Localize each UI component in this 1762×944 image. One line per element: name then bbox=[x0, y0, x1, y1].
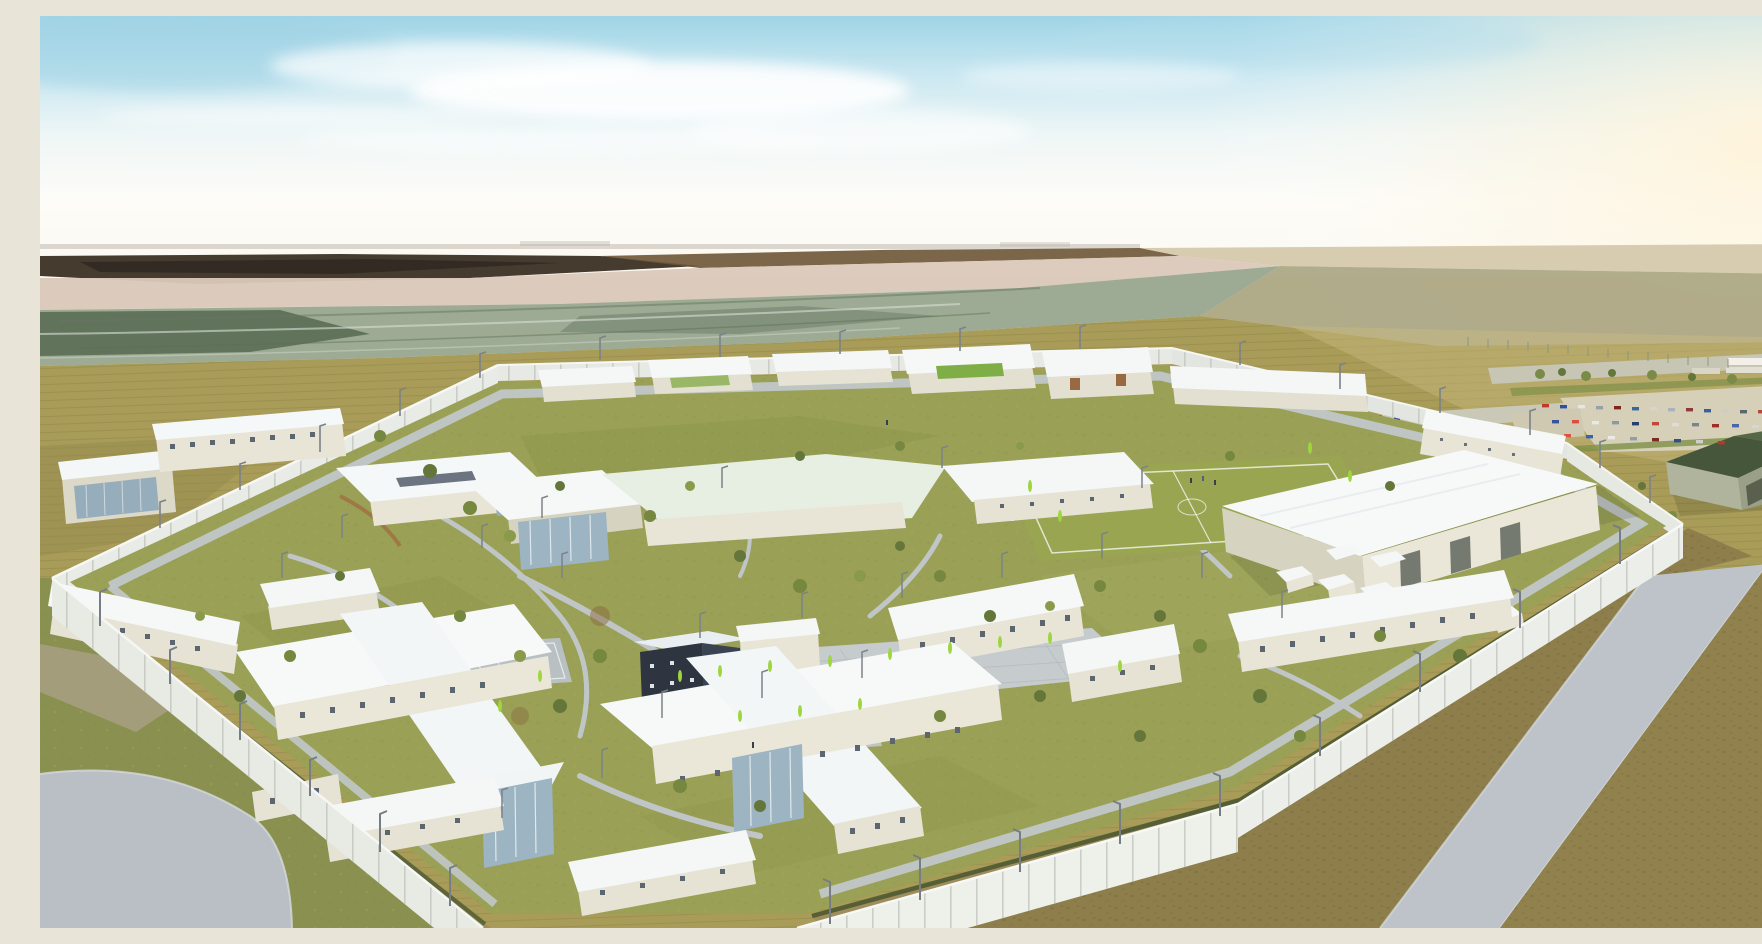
parked-cars-shape bbox=[1668, 408, 1675, 411]
distant-camp-building bbox=[1692, 368, 1720, 374]
window bbox=[210, 440, 215, 445]
parked-cars-shape bbox=[1704, 409, 1711, 412]
vegetation-shape bbox=[504, 530, 516, 542]
parked-cars-shape bbox=[1596, 406, 1603, 409]
window bbox=[820, 751, 825, 757]
parked-cars-shape bbox=[1752, 425, 1759, 428]
window bbox=[330, 707, 335, 713]
window bbox=[290, 434, 295, 439]
person bbox=[1214, 480, 1216, 485]
dorm-x2-entry-glass bbox=[732, 744, 804, 832]
dirt-patch bbox=[590, 606, 610, 626]
vegetation-shape bbox=[1385, 481, 1395, 491]
vegetation-shape bbox=[1253, 689, 1267, 703]
vegetation-shape bbox=[1016, 442, 1024, 450]
parked-cars-shape bbox=[1552, 420, 1559, 423]
window bbox=[480, 682, 485, 688]
window bbox=[650, 684, 654, 688]
cloud bbox=[100, 106, 500, 126]
outside-right-trees-shape bbox=[1535, 369, 1545, 379]
window bbox=[715, 770, 720, 776]
window bbox=[385, 830, 390, 835]
window bbox=[145, 634, 150, 639]
wood-accent bbox=[1070, 378, 1080, 390]
vegetation-shape bbox=[685, 481, 695, 491]
parked-cars-shape bbox=[1758, 410, 1762, 413]
vegetation-shape bbox=[284, 650, 296, 662]
window bbox=[360, 702, 365, 708]
window bbox=[1090, 497, 1094, 501]
cypress bbox=[828, 655, 832, 667]
cloud bbox=[270, 42, 650, 90]
cypress bbox=[538, 670, 542, 682]
window bbox=[170, 444, 175, 449]
window bbox=[270, 798, 275, 804]
vegetation-shape bbox=[793, 579, 807, 593]
window bbox=[420, 824, 425, 829]
parked-cars-shape bbox=[1572, 420, 1579, 423]
parked-cars-shape bbox=[1712, 424, 1719, 427]
cloud bbox=[960, 62, 1240, 90]
person bbox=[1202, 476, 1204, 481]
building-roof bbox=[1042, 347, 1153, 377]
cypress bbox=[1028, 480, 1032, 492]
gym-glass-front bbox=[518, 512, 609, 570]
cypress bbox=[1048, 632, 1052, 644]
parked-cars-shape bbox=[1650, 407, 1657, 410]
distant-camp-building bbox=[1728, 356, 1762, 358]
window bbox=[170, 640, 175, 645]
window bbox=[640, 883, 645, 888]
person bbox=[886, 420, 888, 425]
window bbox=[720, 869, 725, 874]
window bbox=[1150, 665, 1155, 670]
window bbox=[900, 817, 905, 823]
window bbox=[690, 678, 694, 682]
window bbox=[455, 818, 460, 823]
vegetation-shape bbox=[1094, 580, 1106, 592]
distant-camp-building bbox=[1728, 358, 1762, 365]
parked-cars-shape bbox=[1692, 423, 1699, 426]
window bbox=[1410, 622, 1415, 628]
parked-cars-shape bbox=[1578, 405, 1585, 408]
window bbox=[1040, 620, 1045, 626]
window bbox=[1030, 502, 1034, 506]
vegetation-shape bbox=[234, 690, 246, 702]
window bbox=[190, 442, 195, 447]
vegetation-shape bbox=[934, 570, 946, 582]
window bbox=[1350, 632, 1355, 638]
cypress bbox=[718, 665, 722, 677]
vegetation-shape bbox=[423, 464, 437, 478]
vegetation-shape bbox=[1225, 451, 1235, 461]
outside-right-trees-shape bbox=[1608, 369, 1616, 377]
architectural-rendering: Aerial 3D architectural rendering of a l… bbox=[40, 16, 1762, 928]
window bbox=[1512, 453, 1515, 456]
window bbox=[680, 876, 685, 881]
cypress bbox=[1058, 510, 1062, 522]
window bbox=[670, 681, 674, 685]
parked-cars-shape bbox=[1672, 423, 1679, 426]
vegetation-shape bbox=[514, 650, 526, 662]
parked-cars-shape bbox=[1652, 422, 1659, 425]
window bbox=[300, 712, 305, 718]
window bbox=[950, 637, 955, 643]
dirt-patch bbox=[511, 707, 529, 725]
vegetation-shape bbox=[553, 699, 567, 713]
parked-cars-shape bbox=[1586, 435, 1593, 438]
parked-cars-shape bbox=[1722, 409, 1729, 412]
vegetation-shape bbox=[463, 501, 477, 515]
window bbox=[1464, 443, 1467, 446]
parked-cars-shape bbox=[1632, 422, 1639, 425]
parked-cars-shape bbox=[1630, 437, 1637, 440]
cloud bbox=[300, 127, 820, 155]
outside-right-trees-shape bbox=[1638, 482, 1646, 490]
parked-cars-shape bbox=[1612, 421, 1619, 424]
window bbox=[420, 692, 425, 698]
window bbox=[1060, 499, 1064, 503]
warehouse-bay bbox=[1400, 550, 1421, 588]
cypress bbox=[998, 636, 1002, 648]
parked-cars-shape bbox=[1614, 406, 1621, 409]
scene bbox=[40, 16, 1762, 928]
vegetation-shape bbox=[454, 610, 466, 622]
vegetation-shape bbox=[1154, 610, 1166, 622]
parked-cars-shape bbox=[1718, 441, 1725, 444]
cypress bbox=[1308, 442, 1312, 454]
distant-skyline bbox=[520, 241, 610, 246]
cypress bbox=[678, 670, 682, 682]
vegetation-shape bbox=[593, 649, 607, 663]
window bbox=[1440, 617, 1445, 623]
vegetation-shape bbox=[984, 610, 996, 622]
vegetation-shape bbox=[673, 779, 687, 793]
vegetation-shape bbox=[795, 451, 805, 461]
vegetation-shape bbox=[895, 441, 905, 451]
window bbox=[890, 738, 895, 744]
window bbox=[670, 661, 674, 665]
outside-right-trees-shape bbox=[1727, 374, 1737, 384]
outside-right-trees-shape bbox=[1558, 368, 1566, 376]
window bbox=[1470, 613, 1475, 619]
cypress bbox=[1118, 660, 1122, 672]
parked-cars-shape bbox=[1632, 407, 1639, 410]
vegetation-shape bbox=[895, 541, 905, 551]
outside-right-trees-shape bbox=[1688, 373, 1696, 381]
parked-cars-shape bbox=[1542, 404, 1549, 407]
parked-cars-shape bbox=[1740, 410, 1747, 413]
window bbox=[955, 727, 960, 733]
cypress bbox=[498, 700, 502, 712]
cypress bbox=[798, 705, 802, 717]
parked-cars-shape bbox=[1732, 424, 1739, 427]
window bbox=[1488, 448, 1491, 451]
vegetation-shape bbox=[1193, 639, 1207, 653]
window bbox=[1090, 676, 1095, 681]
vegetation-shape bbox=[335, 571, 345, 581]
vegetation-shape bbox=[195, 611, 205, 621]
vegetation-shape bbox=[934, 710, 946, 722]
parked-cars-shape bbox=[1696, 440, 1703, 443]
window bbox=[230, 439, 235, 444]
cypress bbox=[948, 642, 952, 654]
window bbox=[650, 664, 654, 668]
window bbox=[1065, 615, 1070, 621]
window bbox=[600, 890, 605, 895]
window bbox=[1260, 646, 1265, 652]
cypress bbox=[738, 710, 742, 722]
vegetation-shape bbox=[854, 570, 866, 582]
window bbox=[1000, 504, 1004, 508]
cypress bbox=[1348, 470, 1352, 482]
parked-cars-shape bbox=[1608, 436, 1615, 439]
vegetation-shape bbox=[1134, 730, 1146, 742]
vegetation-shape bbox=[754, 800, 766, 812]
person bbox=[752, 742, 754, 748]
window bbox=[925, 732, 930, 738]
parked-cars-shape bbox=[1686, 408, 1693, 411]
warehouse-bay bbox=[1450, 536, 1471, 574]
vegetation-shape bbox=[1374, 630, 1386, 642]
window bbox=[195, 646, 200, 651]
window bbox=[875, 823, 880, 829]
vegetation-shape bbox=[555, 481, 565, 491]
window bbox=[270, 435, 275, 440]
distant-skyline bbox=[1000, 242, 1070, 247]
cypress bbox=[768, 660, 772, 672]
window bbox=[1440, 438, 1443, 441]
window bbox=[450, 687, 455, 693]
vegetation-shape bbox=[644, 510, 656, 522]
window bbox=[1010, 626, 1015, 632]
vegetation-shape bbox=[1045, 601, 1055, 611]
window bbox=[250, 437, 255, 442]
warehouse-bay bbox=[1500, 522, 1521, 560]
parked-cars-shape bbox=[1592, 421, 1599, 424]
parked-cars-shape bbox=[1560, 405, 1567, 408]
parked-cars-shape bbox=[1652, 438, 1659, 441]
window bbox=[310, 432, 315, 437]
distant-camp-building bbox=[1726, 367, 1762, 373]
window bbox=[980, 631, 985, 637]
vegetation-shape bbox=[734, 550, 746, 562]
vegetation-shape bbox=[1034, 690, 1046, 702]
cypress bbox=[888, 648, 892, 660]
outside-right-trees-shape bbox=[1647, 370, 1657, 380]
cypress bbox=[858, 698, 862, 710]
parked-cars-shape bbox=[1674, 439, 1681, 442]
window bbox=[390, 697, 395, 703]
window bbox=[850, 828, 855, 834]
outside-right-trees-shape bbox=[1581, 371, 1591, 381]
vegetation-shape bbox=[1294, 730, 1306, 742]
wood-accent bbox=[1116, 374, 1126, 386]
vegetation-shape bbox=[374, 430, 386, 442]
window bbox=[855, 745, 860, 751]
window bbox=[1320, 636, 1325, 642]
person bbox=[1190, 478, 1192, 483]
window bbox=[1120, 494, 1124, 498]
window bbox=[1290, 641, 1295, 647]
